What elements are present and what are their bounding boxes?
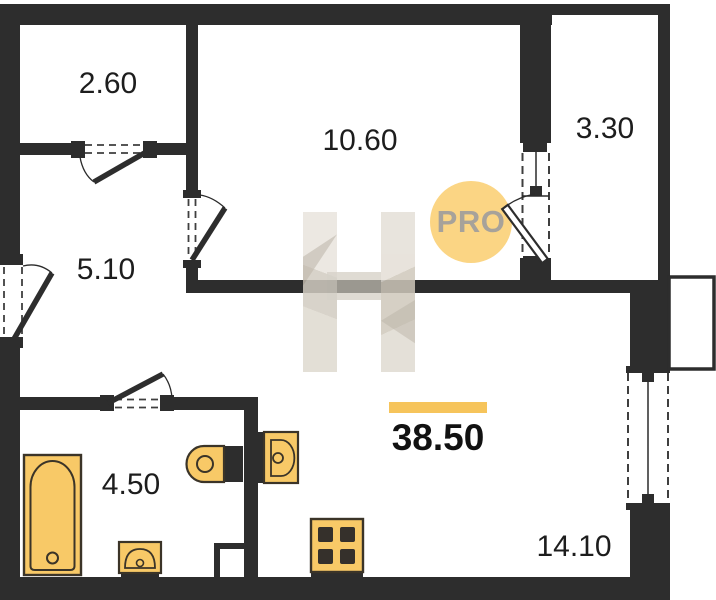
watermark-bar — [381, 212, 415, 372]
toilet-icon — [187, 446, 244, 482]
total-area: 38.50 — [378, 402, 498, 456]
area-label-wardrobe: 2.60 — [60, 68, 156, 100]
bathtub-icon — [24, 455, 81, 575]
watermark-facet — [381, 212, 415, 372]
area-label-bedroom: 10.60 — [310, 125, 410, 157]
area-label-bathroom: 4.50 — [83, 469, 179, 501]
h-watermark — [303, 212, 415, 372]
total-area-highlight — [389, 402, 487, 413]
entrance-door-leaf — [14, 273, 52, 339]
duct-niche — [220, 549, 244, 577]
balcony-door-leaf — [502, 205, 548, 263]
stove-icon — [311, 519, 363, 580]
door-leaf — [192, 208, 225, 260]
bathroom-sink-icon — [119, 542, 161, 579]
fixtures — [24, 432, 363, 580]
exterior-ledge — [669, 277, 714, 369]
area-label-hallway: 5.10 — [58, 254, 154, 286]
area-label-kitchen-living: 14.10 — [520, 531, 628, 563]
area-label-balcony: 3.30 — [557, 113, 653, 145]
window-frames — [522, 152, 648, 494]
door-leaf — [94, 151, 148, 182]
floor-plan: PRO — [0, 0, 716, 600]
total-area-label: 38.50 — [378, 419, 498, 456]
kitchen-sink-icon — [256, 432, 298, 483]
